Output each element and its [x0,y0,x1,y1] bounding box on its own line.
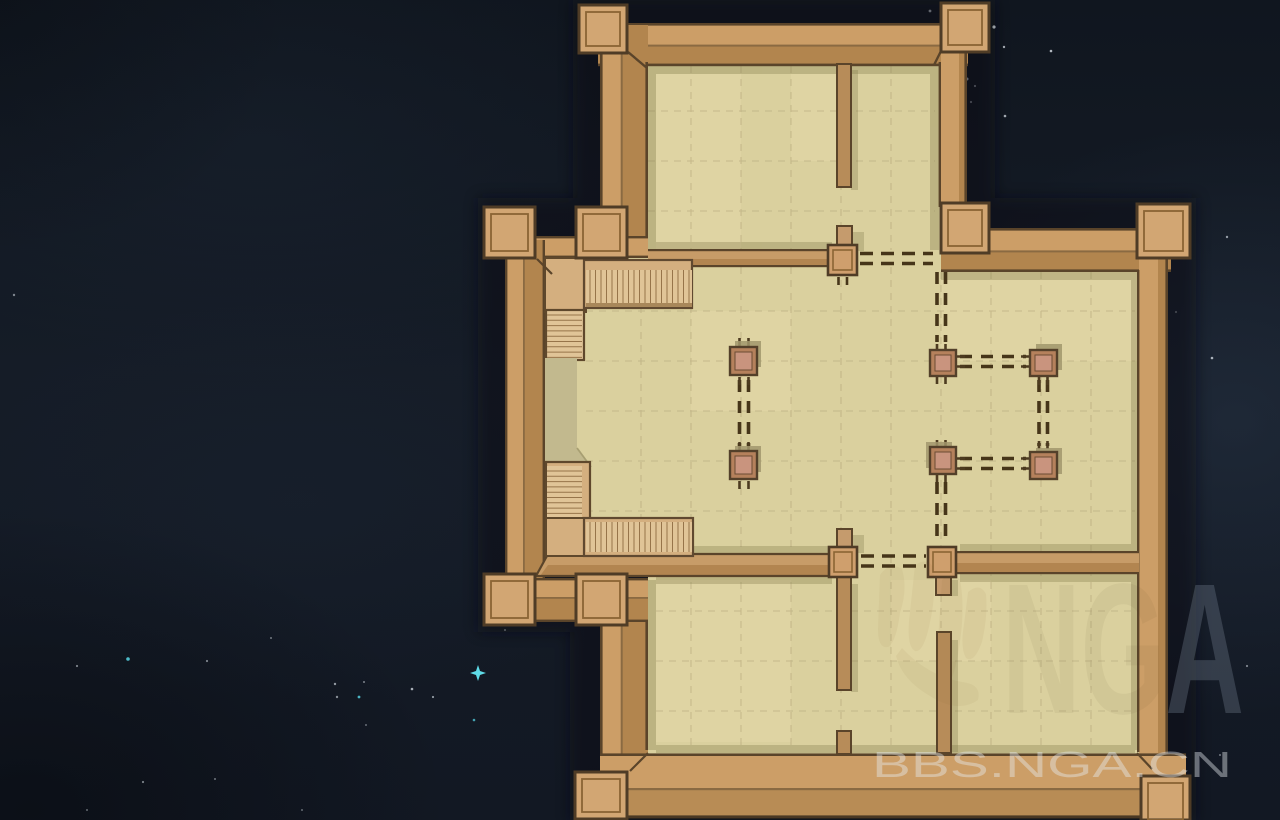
svg-text:BBS.NGA.CN: BBS.NGA.CN [872,744,1232,785]
